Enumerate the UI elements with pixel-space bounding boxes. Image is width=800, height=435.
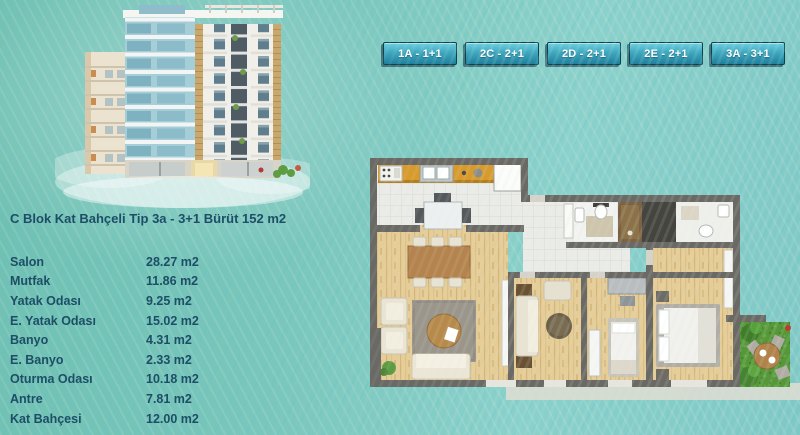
room-name: Yatak Odası: [10, 294, 146, 308]
room-area: 2.33 m2: [146, 353, 192, 367]
tab-3a-3p1[interactable]: 3A - 3+1: [711, 42, 785, 65]
room-name: Kat Bahçesi: [10, 412, 146, 426]
room-area: 15.02 m2: [146, 314, 199, 328]
tab-2c-2p1[interactable]: 2C - 2+1: [465, 42, 539, 65]
room-area: 28.27 m2: [146, 255, 199, 269]
main-building: [123, 5, 301, 178]
table-row: Banyo 4.31 m2: [10, 330, 240, 350]
page: 1A - 1+1 2C - 2+1 2D - 2+1 2E - 2+1 3A -…: [0, 0, 800, 435]
table-row: Mutfak 11.86 m2: [10, 272, 240, 292]
room-name: E. Banyo: [10, 353, 146, 367]
table-row: E. Yatak Odası 15.02 m2: [10, 311, 240, 331]
table-row: Oturma Odası 10.18 m2: [10, 370, 240, 390]
table-row: Salon 28.27 m2: [10, 252, 240, 272]
table-row: Antre 7.81 m2: [10, 389, 240, 409]
room-name: Banyo: [10, 333, 146, 347]
room-area: 11.86 m2: [146, 274, 198, 288]
room-area: 12.00 m2: [146, 412, 199, 426]
unit-type-tabs: 1A - 1+1 2C - 2+1 2D - 2+1 2E - 2+1 3A -…: [383, 42, 785, 65]
room-name: Salon: [10, 255, 146, 269]
unit-title: C Blok Kat Bahçeli Tip 3a - 3+1 Bürüt 15…: [10, 211, 380, 226]
tab-2e-2p1[interactable]: 2E - 2+1: [629, 42, 703, 65]
room-area: 4.31 m2: [146, 333, 192, 347]
room-name: Mutfak: [10, 274, 146, 288]
floor-plan: [368, 150, 800, 435]
room-name: E. Yatak Odası: [10, 314, 146, 328]
room-area-table: Salon 28.27 m2 Mutfak 11.86 m2 Yatak Oda…: [10, 252, 240, 428]
room-name: Oturma Odası: [10, 372, 146, 386]
tab-1a-1p1[interactable]: 1A - 1+1: [383, 42, 457, 65]
room-name: Antre: [10, 392, 146, 406]
building-rendering: [55, 0, 310, 208]
room-area: 9.25 m2: [146, 294, 192, 308]
table-row: Yatak Odası 9.25 m2: [10, 291, 240, 311]
rear-building: [85, 52, 129, 174]
table-row: Kat Bahçesi 12.00 m2: [10, 409, 240, 429]
room-area: 7.81 m2: [146, 392, 192, 406]
tab-2d-2p1[interactable]: 2D - 2+1: [547, 42, 621, 65]
room-area: 10.18 m2: [146, 372, 199, 386]
table-row: E. Banyo 2.33 m2: [10, 350, 240, 370]
